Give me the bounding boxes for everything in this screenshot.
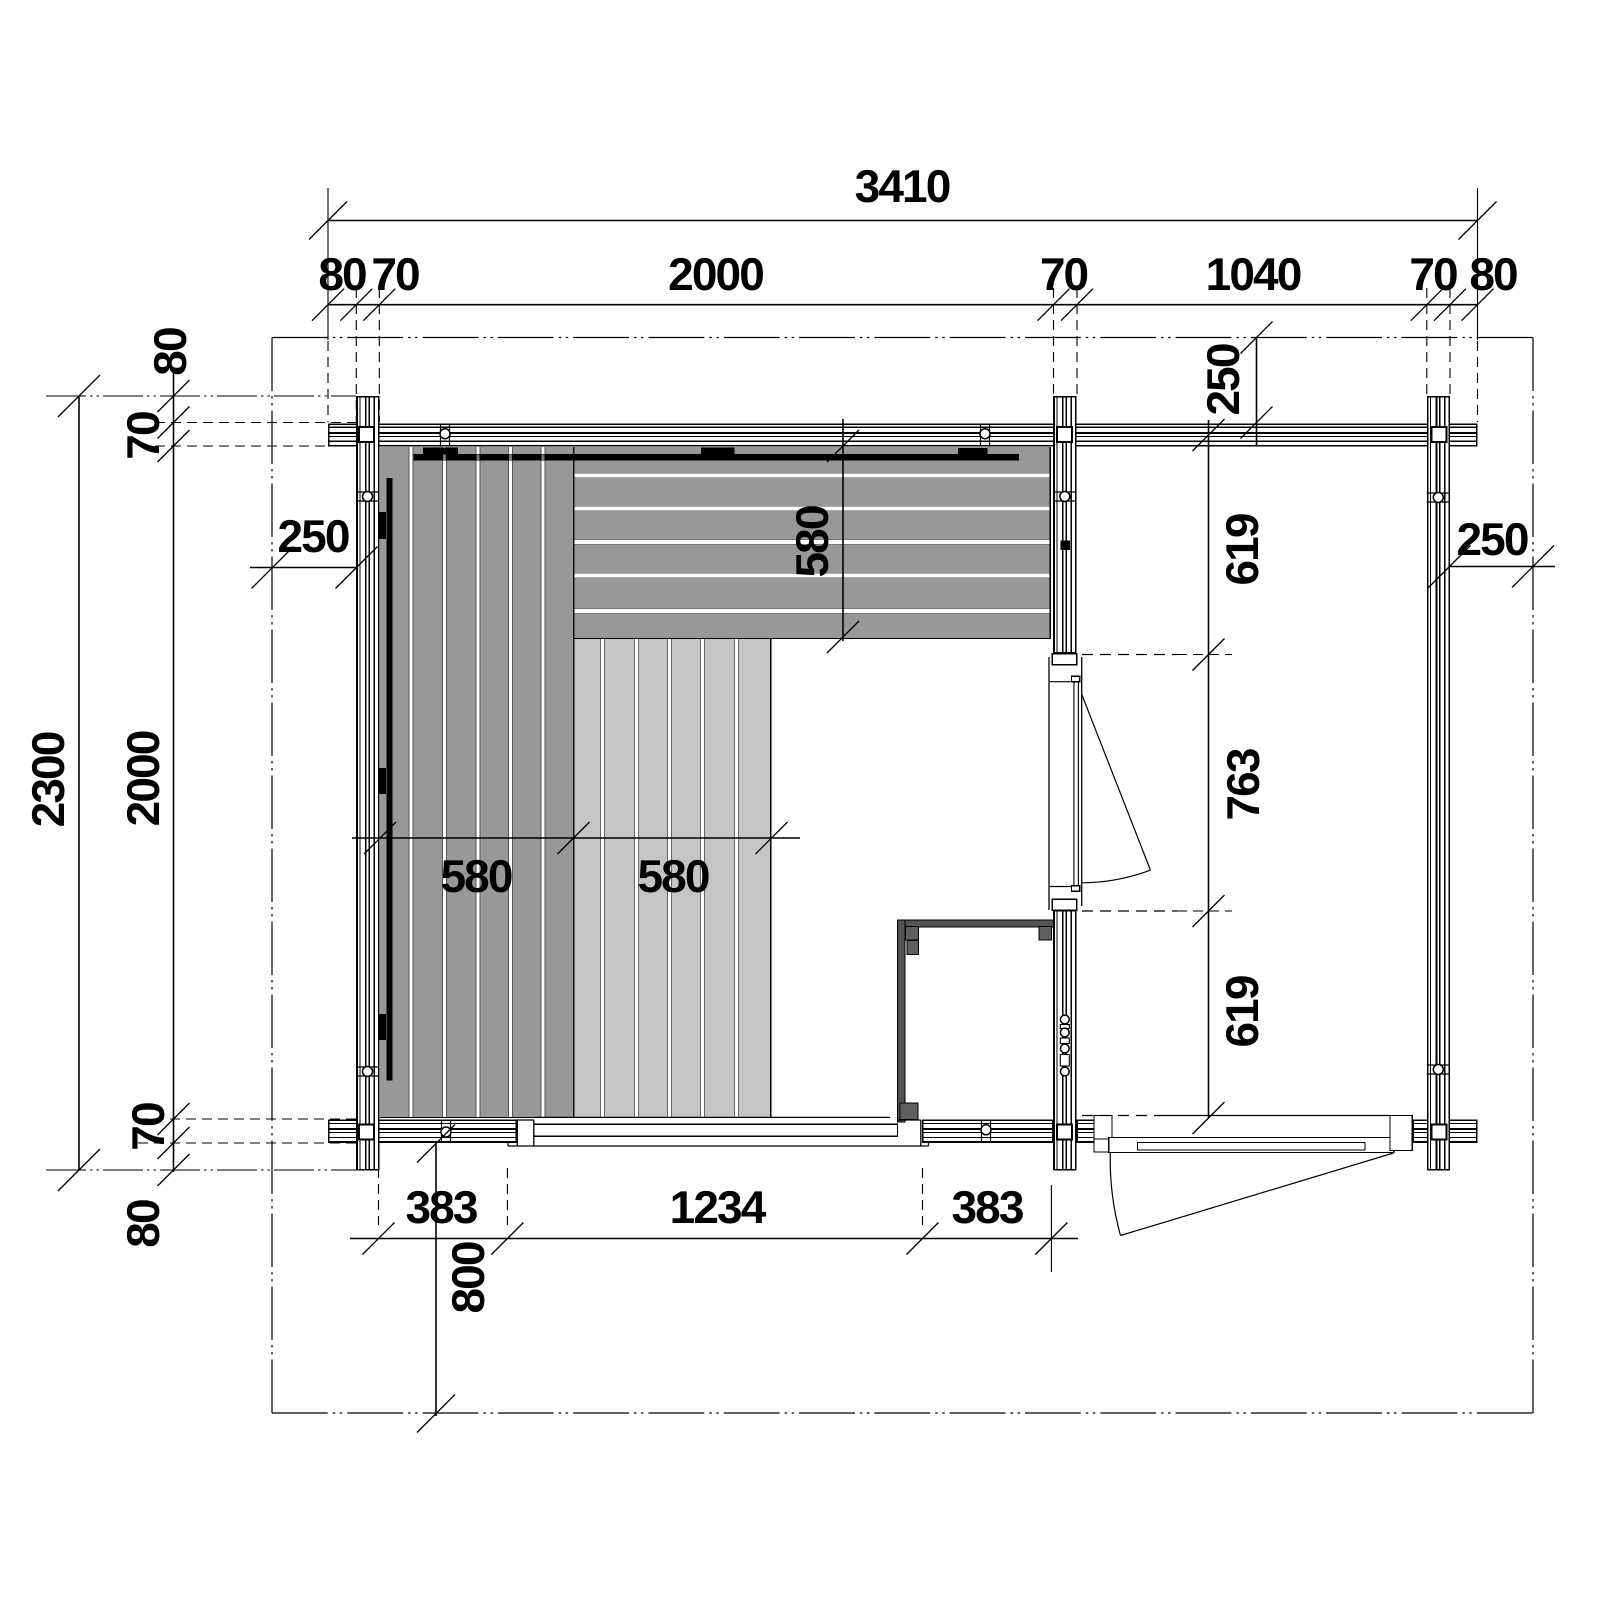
svg-text:619: 619 [1216,514,1268,585]
svg-text:250: 250 [277,510,348,562]
svg-text:580: 580 [637,850,708,902]
svg-text:80: 80 [318,248,366,300]
svg-text:580: 580 [440,850,511,902]
svg-text:80: 80 [144,328,196,376]
svg-text:250: 250 [1197,344,1249,415]
svg-text:3410: 3410 [855,160,950,212]
svg-text:70: 70 [371,248,419,300]
svg-text:2300: 2300 [22,732,74,827]
svg-text:619: 619 [1216,976,1268,1047]
svg-text:80: 80 [117,1200,169,1248]
svg-text:763: 763 [1217,749,1269,820]
svg-text:80: 80 [1469,248,1517,300]
svg-text:70: 70 [1040,248,1088,300]
svg-text:70: 70 [1409,248,1457,300]
svg-text:800: 800 [442,1242,494,1313]
svg-text:70: 70 [117,412,169,460]
svg-text:250: 250 [1456,513,1527,565]
svg-text:70: 70 [122,1103,174,1151]
svg-text:2000: 2000 [668,248,763,300]
svg-text:580: 580 [786,506,838,577]
svg-text:1234: 1234 [670,1181,767,1233]
svg-text:383: 383 [405,1181,476,1233]
svg-text:383: 383 [951,1181,1022,1233]
svg-text:2000: 2000 [117,731,169,826]
svg-text:1040: 1040 [1206,248,1301,300]
